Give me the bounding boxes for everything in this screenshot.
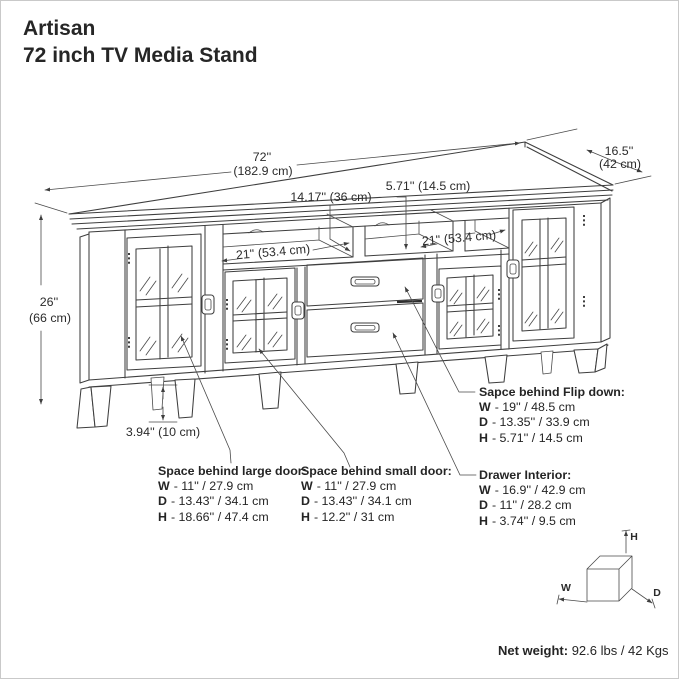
callout-title: Drawer Interior: [479,468,586,483]
callout-row: D- 13.35'' / 33.9 cm [479,415,625,430]
callout-flip-down: Sapce behind Flip down: W- 19'' / 48.5 c… [479,385,625,446]
glass-reflections [140,274,188,355]
callout-row: D- 13.43'' / 34.1 cm [158,494,307,509]
page-title: Artisan 72 inch TV Media Stand [23,15,258,69]
callout-row: D- 13.43'' / 34.1 cm [301,494,452,509]
dim-flip-opening-height: 5.71'' (14.5 cm) [386,179,471,193]
dim-overall-height-in: 26'' [40,295,59,309]
dim-center-shelf: 14.17'' (36 cm) [290,190,371,204]
tv-stand-technical-drawing [1,1,679,679]
axis-cube-icon [557,530,655,608]
callout-row: D- 11'' / 28.2 cm [479,498,586,513]
callout-row: H- 12.2'' / 31 cm [301,510,452,525]
dim-overall-depth-cm: (42 cm) [599,157,641,171]
callout-row: H- 18.66'' / 47.4 cm [158,510,307,525]
door-handle [292,302,304,319]
dim-overall-width-cm: (182.9 cm) [233,164,292,178]
large-glass-door-left [127,234,214,370]
callout-title: Space behind large door: [158,464,307,479]
callout-row: W- 16.9'' / 42.9 cm [479,483,586,498]
door-handle [202,295,214,314]
dim-overall-width-in: 72'' [253,150,272,164]
callout-row: H- 5.71'' / 14.5 cm [479,431,625,446]
callout-drawer-interior: Drawer Interior: W- 16.9'' / 42.9 cm D- … [479,468,586,529]
door-handle [432,285,444,302]
door-handle [507,260,519,278]
callout-row: W- 11'' / 27.9 cm [158,479,307,494]
callout-row: W- 11'' / 27.9 cm [301,479,452,494]
callout-small-door: Space behind small door: W- 11'' / 27.9 … [301,464,452,525]
net-weight-label: Net weight: [498,643,568,658]
tabletop [69,142,613,229]
callout-title: Sapce behind Flip down: [479,385,625,400]
drawers [307,258,423,357]
dim-leg-height: 3.94'' (10 cm) [126,425,200,439]
brand-name: Artisan [23,15,258,42]
large-glass-door-right [507,207,574,341]
glass-reflections [525,238,563,326]
axis-label-d: D [653,587,661,599]
glass-reflections [237,294,282,350]
spec-sheet: Artisan 72 inch TV Media Stand 72'' (182… [0,0,679,679]
callout-large-door: Space behind large door: W- 11'' / 27.9 … [158,464,307,525]
axis-label-h: H [630,531,638,543]
callout-title: Space behind small door: [301,464,452,479]
net-weight-value: 92.6 lbs / 42 Kgs [572,643,669,658]
axis-label-w: W [561,582,571,594]
product-name: 72 inch TV Media Stand [23,42,258,69]
dim-overall-height-cm: (66 cm) [29,311,71,325]
callout-row: H- 3.74'' / 9.5 cm [479,514,586,529]
net-weight: Net weight: 92.6 lbs / 42 Kgs [498,643,669,658]
small-glass-door-right [432,266,501,349]
dim-overall-depth-in: 16.5'' [605,144,634,158]
small-glass-door-left [225,268,304,363]
callout-row: W- 19'' / 48.5 cm [479,400,625,415]
